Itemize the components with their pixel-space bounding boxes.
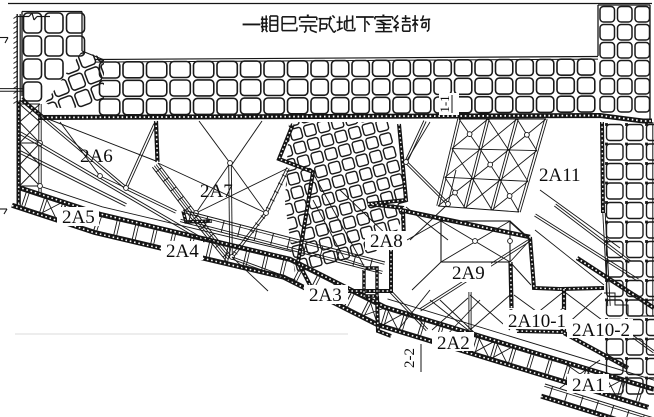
svg-text:2A11: 2A11: [539, 165, 581, 186]
svg-text:2A5: 2A5: [62, 207, 95, 228]
svg-text:2A10-2: 2A10-2: [572, 320, 630, 341]
svg-text:2A9: 2A9: [452, 263, 485, 284]
svg-text:2A1: 2A1: [572, 375, 605, 396]
svg-text:2A6: 2A6: [80, 146, 113, 167]
svg-text:2A10-1: 2A10-1: [508, 311, 566, 332]
svg-text:2A8: 2A8: [370, 231, 403, 252]
svg-text:2A3: 2A3: [309, 285, 342, 306]
svg-text:2-2: 2-2: [402, 348, 418, 368]
svg-text:1-1: 1-1: [437, 95, 452, 112]
svg-text:2A2: 2A2: [437, 333, 470, 354]
svg-text:2A4: 2A4: [166, 241, 199, 262]
svg-text:2A7: 2A7: [200, 181, 233, 202]
